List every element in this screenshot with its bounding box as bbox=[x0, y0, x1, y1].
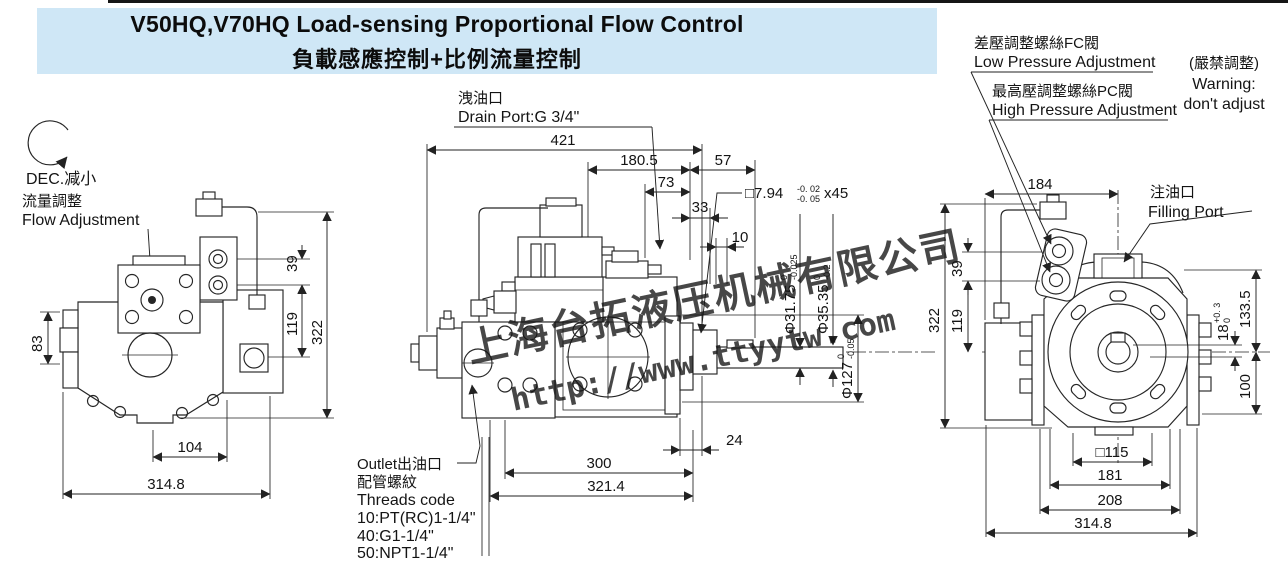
dim-115: □115 bbox=[1096, 444, 1129, 461]
dim-3214: 321.4 bbox=[587, 478, 625, 495]
dim-184: 184 bbox=[1027, 176, 1052, 193]
dim-1805: 180.5 bbox=[620, 152, 658, 169]
drawing-page: V50HQ,V70HQ Load-sensing Proportional Fl… bbox=[0, 0, 1288, 567]
flow-adjust-en: Flow Adjustment bbox=[22, 212, 140, 229]
warning-zh: (嚴禁調整) bbox=[1189, 55, 1259, 72]
outlet-label-2: 配管螺紋 bbox=[357, 474, 417, 491]
pc-valve-zh: 最高壓調整螺絲PC閥 bbox=[992, 83, 1133, 100]
right-view: 差壓調整螺絲FC閥 Low Pressure Adjustment 最高壓調整螺… bbox=[926, 35, 1270, 537]
dim-33: 33 bbox=[692, 199, 709, 216]
dim-39-left: 39 bbox=[284, 255, 301, 272]
dim-10: 10 bbox=[732, 229, 749, 246]
dim-100: 100 bbox=[1237, 374, 1254, 399]
dim-181: 181 bbox=[1097, 467, 1122, 484]
outlet-label-1: Outlet出油口 bbox=[357, 456, 442, 473]
dim-18-tol-top: +0. 3 bbox=[1212, 303, 1222, 323]
drain-port-en: Drain Port:G 3/4" bbox=[458, 109, 579, 126]
dim-104: 104 bbox=[177, 439, 202, 456]
outlet-label-3: Threads code bbox=[357, 492, 455, 509]
flow-adjust-zh: 流量調整 bbox=[22, 193, 82, 210]
outlet-label-6: 50:NPT1-1/4" bbox=[357, 545, 453, 562]
filling-port-zh: 注油口 bbox=[1150, 184, 1195, 201]
outlet-label-4: 10:PT(RC)1-1/4" bbox=[357, 510, 476, 527]
pc-valve-en: High Pressure Adjustment bbox=[992, 102, 1178, 119]
warning-en-1: Warning: bbox=[1192, 76, 1255, 93]
outlet-label-5: 40:G1-1/4" bbox=[357, 528, 434, 545]
dim-18-tol-bot: 0 bbox=[1222, 318, 1232, 323]
dim-300: 300 bbox=[586, 455, 611, 472]
callout-pilot: Φ127 bbox=[839, 362, 856, 399]
callout-key-tol-bot: -0. 05 bbox=[797, 194, 820, 204]
dim-73: 73 bbox=[658, 174, 675, 191]
dim-208: 208 bbox=[1097, 492, 1122, 509]
warning-en-2: don't adjust bbox=[1183, 96, 1265, 113]
dim-322-right: 322 bbox=[926, 308, 943, 333]
dim-24: 24 bbox=[726, 432, 743, 449]
left-view: DEC.减小 流量調整 Flow Adjustment bbox=[22, 121, 334, 499]
pump-technical-drawing: DEC.减小 流量調整 Flow Adjustment bbox=[0, 0, 1288, 567]
callout-key-tol-top: -0. 02 bbox=[797, 184, 820, 194]
dim-119-left: 119 bbox=[284, 312, 301, 336]
callout-key-suffix: x45 bbox=[824, 185, 848, 202]
dim-18: 18 bbox=[1215, 324, 1232, 341]
dec-label: DEC.减小 bbox=[26, 170, 96, 188]
dim-314-left: 314.8 bbox=[147, 476, 185, 493]
drain-port-zh: 洩油口 bbox=[458, 90, 503, 107]
fc-valve-en: Low Pressure Adjustment bbox=[974, 54, 1156, 71]
dim-314-right: 314.8 bbox=[1074, 515, 1112, 532]
dim-1335: 133.5 bbox=[1237, 290, 1254, 328]
dim-83: 83 bbox=[29, 335, 46, 352]
fc-valve-zh: 差壓調整螺絲FC閥 bbox=[974, 35, 1099, 52]
dim-421: 421 bbox=[550, 132, 575, 149]
rotation-arrow-icon bbox=[28, 121, 68, 165]
filling-port-en: Filling Port bbox=[1148, 204, 1224, 221]
dim-322-left: 322 bbox=[309, 320, 326, 345]
callout-pilot-tol-top: 0 bbox=[836, 354, 846, 359]
dim-119-right: 119 bbox=[949, 309, 966, 333]
callout-key-main: □7.94 bbox=[745, 185, 783, 202]
dim-57: 57 bbox=[715, 152, 732, 169]
